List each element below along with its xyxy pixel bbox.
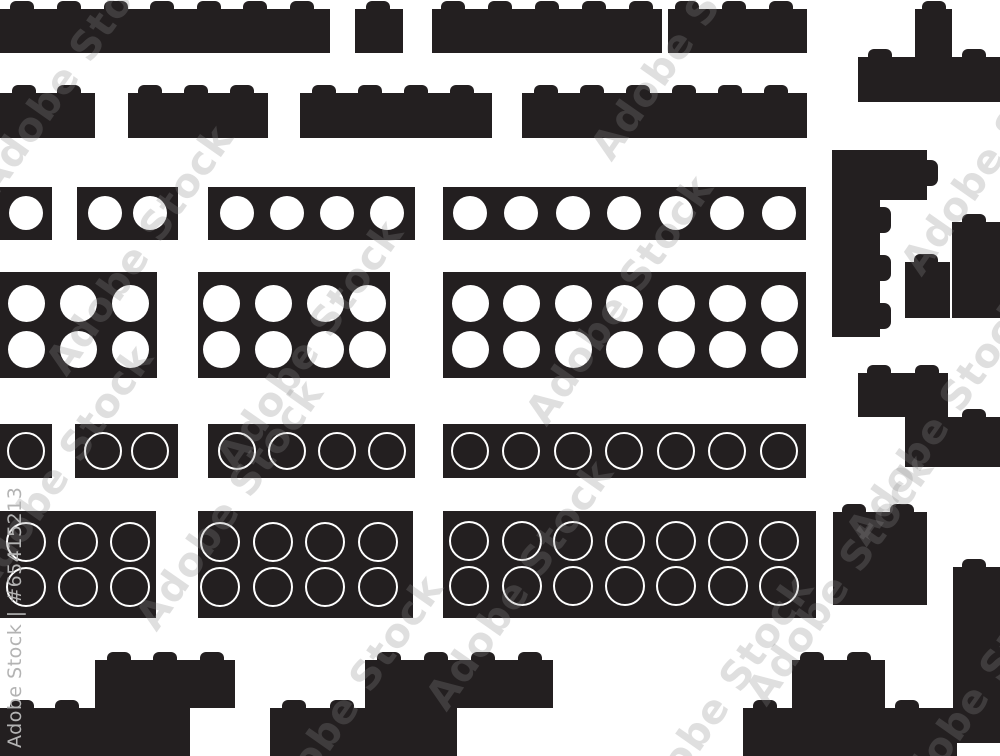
bottom-stack-2-upper-stud-0 [377, 652, 401, 662]
brick-top-2x7-filled-stud-circle-1-6 [761, 331, 798, 368]
brick-top-1x4-filled-stud-circle-0-3 [370, 196, 404, 230]
brick-top-2x7-outline-stud-circle-0-3 [605, 521, 645, 561]
brick-top-1x4-outline-stud-circle-0-1 [268, 432, 306, 470]
step-pair-1-tall-stud-0 [962, 214, 986, 224]
brick-top-2x7-outline-stud-circle-1-3 [605, 566, 645, 606]
brick-top-1x7-outline-stud-circle-0-4 [657, 432, 695, 470]
brick-top-1x7-filled-stud-circle-0-3 [607, 196, 641, 230]
brick-side-5-stud-stud-2 [535, 1, 559, 11]
bottom-stack-1-upper-stud-0 [107, 652, 131, 662]
brick-side-3-stud-b-stud-0 [138, 85, 162, 95]
assembly-top-right-left-stud-0 [868, 49, 892, 59]
brick-side-7-stud-stud-6 [290, 1, 314, 11]
brick-top-2x3-filled-stud-circle-1-1 [60, 331, 97, 368]
brick-top-1x7-outline-stud-circle-0-2 [554, 432, 592, 470]
bottom-stack-3-upper [792, 660, 885, 708]
brick-top-1x1-filled-stud-circle-0-0 [9, 196, 43, 230]
brick-top-2x3-filled-stud-circle-1-2 [112, 331, 149, 368]
brick-top-2x4-outline-stud-circle-1-1 [253, 567, 293, 607]
brick-side-3-stud-stud-1 [722, 1, 746, 11]
staircase-upper-stud-1 [915, 365, 939, 375]
brick-top-2x7-outline-stud-circle-0-0 [449, 521, 489, 561]
brick-side-6-stud-stud-0 [534, 85, 558, 95]
step-pair-1-tall [952, 222, 1000, 318]
brick-top-2x7-filled-stud-circle-1-2 [555, 331, 592, 368]
brick-top-2x4-outline-stud-circle-1-0 [200, 567, 240, 607]
brick-top-2x7-filled-stud-circle-1-5 [709, 331, 746, 368]
brick-top-2x7-outline-stud-circle-0-4 [656, 521, 696, 561]
brick-top-2x4-filled-stud-circle-0-3 [349, 285, 386, 322]
brick-vertical-4-stud-stud-1 [878, 255, 891, 281]
brick-top-1x7-filled-stud-circle-0-6 [762, 196, 796, 230]
bottom-stack-1-lower-stud-1 [55, 700, 79, 710]
brick-side-4-stud-stud-2 [404, 85, 428, 95]
bottom-stack-1-upper [95, 660, 235, 708]
brick-top-1x4-outline-stud-circle-0-3 [368, 432, 406, 470]
brick-side-7-stud [0, 9, 330, 53]
bottom-stack-1-lower-stud-0 [10, 700, 34, 710]
brick-top-1x7-outline-stud-circle-0-3 [605, 432, 643, 470]
brick-top-1x4-filled-stud-circle-0-2 [320, 196, 354, 230]
brick-top-2x4-filled-stud-circle-1-0 [203, 331, 240, 368]
brick-vertical-4-stud [832, 150, 880, 337]
bottom-stack-3-lower-stud-0 [753, 700, 777, 710]
brick-top-1x7-filled-stud-circle-0-2 [556, 196, 590, 230]
brick-side-3-stud-stud-2 [769, 1, 793, 11]
brick-vertical-4-stud-stud-0 [878, 207, 891, 233]
brick-top-1x4-filled-stud-circle-0-1 [270, 196, 304, 230]
brick-side-5-stud-stud-0 [441, 1, 465, 11]
brick-side-4-stud-stud-0 [312, 85, 336, 95]
brick-square-2-stud-stud-0 [842, 504, 866, 514]
brick-top-2x7-outline-stud-circle-1-2 [553, 566, 593, 606]
brick-top-2x7-outline-stud-circle-0-5 [708, 521, 748, 561]
brick-top-2x4-outline-stud-circle-1-3 [358, 567, 398, 607]
brick-top-2x4-outline-stud-circle-0-2 [305, 522, 345, 562]
brick-side-7-stud-stud-2 [104, 1, 128, 11]
brick-top-2x7-outline-stud-circle-0-6 [759, 521, 799, 561]
brick-top-2x7-filled-stud-circle-0-3 [606, 285, 643, 322]
brick-top-2x3-outline-stud-circle-1-0 [6, 567, 46, 607]
bottom-stack-3-upper-stud-1 [847, 652, 871, 662]
staircase-upper [858, 373, 948, 417]
bottom-stack-2-upper-stud-2 [471, 652, 495, 662]
bottom-stack-3-lower-stud-1 [895, 700, 919, 710]
brick-top-2x7-filled-stud-circle-1-1 [503, 331, 540, 368]
brick-top-1x7-filled-stud-circle-0-5 [710, 196, 744, 230]
brick-top-1x7-filled-stud-circle-0-4 [659, 196, 693, 230]
brick-side-6-stud [522, 93, 807, 138]
brick-top-1x7-filled-stud-circle-0-0 [453, 196, 487, 230]
brick-right-edge-partial [953, 567, 1000, 743]
bottom-stack-2-upper [365, 660, 553, 708]
brick-side-6-stud-stud-5 [764, 85, 788, 95]
brick-top-1x7-outline-stud-circle-0-0 [451, 432, 489, 470]
brick-side-7-stud-stud-0 [10, 1, 34, 11]
brick-side-3-stud-b [128, 93, 268, 138]
brick-vertical-1-stud [880, 150, 927, 200]
brick-side-7-stud-stud-4 [197, 1, 221, 11]
brick-top-2x7-outline-stud-circle-1-4 [656, 566, 696, 606]
brick-top-2x7-outline-stud-circle-1-1 [502, 566, 542, 606]
bottom-stack-1-upper-stud-2 [200, 652, 224, 662]
brick-top-2x4-outline-stud-circle-0-0 [200, 522, 240, 562]
brick-side-4-stud-stud-3 [450, 85, 474, 95]
step-pair-1-small [905, 262, 950, 318]
brick-top-1x2-filled-stud-circle-0-1 [133, 196, 167, 230]
brick-top-1x2-filled-stud-circle-0-0 [88, 196, 122, 230]
staircase-upper-stud-0 [867, 365, 891, 375]
brick-top-2x4-outline-stud-circle-0-3 [358, 522, 398, 562]
assembly-top-right-right-stud-0 [962, 49, 986, 59]
brick-top-2x3-filled-stud-circle-1-0 [8, 331, 45, 368]
brick-top-2x7-outline-stud-circle-0-2 [553, 521, 593, 561]
brick-side-3-stud-b-stud-1 [184, 85, 208, 95]
brick-vertical-1-stud-stud-0 [925, 160, 938, 186]
brick-top-1x7-outline-stud-circle-0-1 [502, 432, 540, 470]
brick-top-2x4-outline-stud-circle-1-2 [305, 567, 345, 607]
staircase-lower [905, 417, 1000, 467]
brick-top-2x7-filled-stud-circle-0-4 [658, 285, 695, 322]
brick-side-6-stud-stud-3 [672, 85, 696, 95]
brick-top-1x7-filled-stud-circle-0-1 [504, 196, 538, 230]
bottom-stack-2-lower-stud-1 [330, 700, 354, 710]
brick-top-2x3-outline-stud-circle-1-2 [110, 567, 150, 607]
brick-top-2x3-filled-stud-circle-0-0 [8, 285, 45, 322]
brick-top-2x7-filled-stud-circle-0-2 [555, 285, 592, 322]
brick-side-5-stud [432, 9, 662, 53]
brick-top-1x1-outline-stud-circle-0-0 [7, 432, 45, 470]
brick-top-2x7-filled-stud-circle-1-4 [658, 331, 695, 368]
brick-side-7-stud-stud-5 [243, 1, 267, 11]
brick-side-3-stud-stud-0 [675, 1, 699, 11]
brick-top-2x4-filled-stud-circle-0-2 [307, 285, 344, 322]
brick-top-1x2-outline-stud-circle-0-0 [84, 432, 122, 470]
bottom-stack-3-upper-stud-0 [800, 652, 824, 662]
brick-side-3-stud [668, 9, 807, 53]
brick-top-2x4-filled-stud-circle-1-3 [349, 331, 386, 368]
brick-side-4-stud [300, 93, 492, 138]
brick-top-2x7-outline-stud-circle-1-0 [449, 566, 489, 606]
assembly-top-right-1x1 [915, 9, 952, 57]
bottom-stack-1-lower [0, 708, 190, 756]
brick-top-2x4-outline-stud-circle-0-1 [253, 522, 293, 562]
brick-top-2x7-outline-stud-circle-1-5 [708, 566, 748, 606]
brick-side-6-stud-stud-1 [580, 85, 604, 95]
brick-side-1-stud-stud-0 [366, 1, 390, 11]
brick-square-2-stud [833, 512, 927, 605]
bottom-stack-2-upper-stud-1 [424, 652, 448, 662]
brick-side-5-stud-stud-4 [629, 1, 653, 11]
brick-top-2x7-filled-stud-circle-0-0 [452, 285, 489, 322]
brick-top-2x4-filled-stud-circle-1-2 [307, 331, 344, 368]
brick-side-3-stud-b-stud-2 [230, 85, 254, 95]
assembly-top-right-1x1-stud-0 [922, 1, 946, 11]
brick-top-2x4-filled-stud-circle-1-1 [255, 331, 292, 368]
brick-top-2x7-filled-stud-circle-1-0 [452, 331, 489, 368]
brick-top-2x7-filled-stud-circle-1-3 [606, 331, 643, 368]
brick-top-2x3-outline-stud-circle-0-1 [58, 522, 98, 562]
brick-side-2-stud [0, 93, 95, 138]
brick-top-1x2-outline-stud-circle-0-1 [131, 432, 169, 470]
brick-top-2x3-outline-stud-circle-0-2 [110, 522, 150, 562]
bottom-stack-2-lower [270, 708, 457, 756]
brick-top-1x7-outline-stud-circle-0-5 [708, 432, 746, 470]
brick-top-1x4-outline-stud-circle-0-2 [318, 432, 356, 470]
brick-side-2-stud-stud-1 [57, 85, 81, 95]
brick-top-2x4-filled-stud-circle-0-0 [203, 285, 240, 322]
bottom-stack-3-lower [743, 708, 957, 756]
brick-top-2x4-filled-stud-circle-0-1 [255, 285, 292, 322]
brick-top-2x3-outline-stud-circle-1-1 [58, 567, 98, 607]
brick-top-2x7-outline-stud-circle-0-1 [502, 521, 542, 561]
brick-side-6-stud-stud-2 [626, 85, 650, 95]
brick-top-2x7-filled-stud-circle-0-1 [503, 285, 540, 322]
brick-side-6-stud-stud-4 [718, 85, 742, 95]
bottom-stack-2-upper-stud-3 [518, 652, 542, 662]
brick-square-2-stud-stud-1 [890, 504, 914, 514]
brick-right-edge-partial-stud-0 [962, 559, 986, 569]
brick-top-2x7-filled-stud-circle-0-5 [709, 285, 746, 322]
brick-side-5-stud-stud-1 [488, 1, 512, 11]
brick-side-7-stud-stud-1 [57, 1, 81, 11]
assembly-top-right-left [858, 57, 953, 102]
brick-top-2x3-outline-stud-circle-0-0 [6, 522, 46, 562]
brick-top-2x7-filled-stud-circle-0-6 [761, 285, 798, 322]
step-pair-1-small-stud-0 [914, 254, 938, 264]
brick-side-2-stud-stud-0 [12, 85, 36, 95]
brick-top-1x7-outline-stud-circle-0-6 [760, 432, 798, 470]
illustration-canvas: Adobe StockAdobe StockAdobe StockAdobe S… [0, 0, 1000, 756]
brick-vertical-4-stud-stud-2 [878, 303, 891, 329]
assembly-top-right-right [953, 57, 1000, 102]
brick-top-2x3-filled-stud-circle-0-1 [60, 285, 97, 322]
brick-side-4-stud-stud-1 [358, 85, 382, 95]
brick-side-1-stud [355, 9, 403, 53]
brick-side-5-stud-stud-3 [582, 1, 606, 11]
bottom-stack-2-lower-stud-0 [282, 700, 306, 710]
brick-top-2x3-filled-stud-circle-0-2 [112, 285, 149, 322]
staircase-lower-stud-0 [962, 409, 986, 419]
bottom-stack-1-upper-stud-1 [153, 652, 177, 662]
brick-side-7-stud-stud-3 [150, 1, 174, 11]
brick-top-1x4-filled-stud-circle-0-0 [220, 196, 254, 230]
brick-top-2x7-outline-stud-circle-1-6 [759, 566, 799, 606]
brick-top-1x4-outline-stud-circle-0-0 [218, 432, 256, 470]
